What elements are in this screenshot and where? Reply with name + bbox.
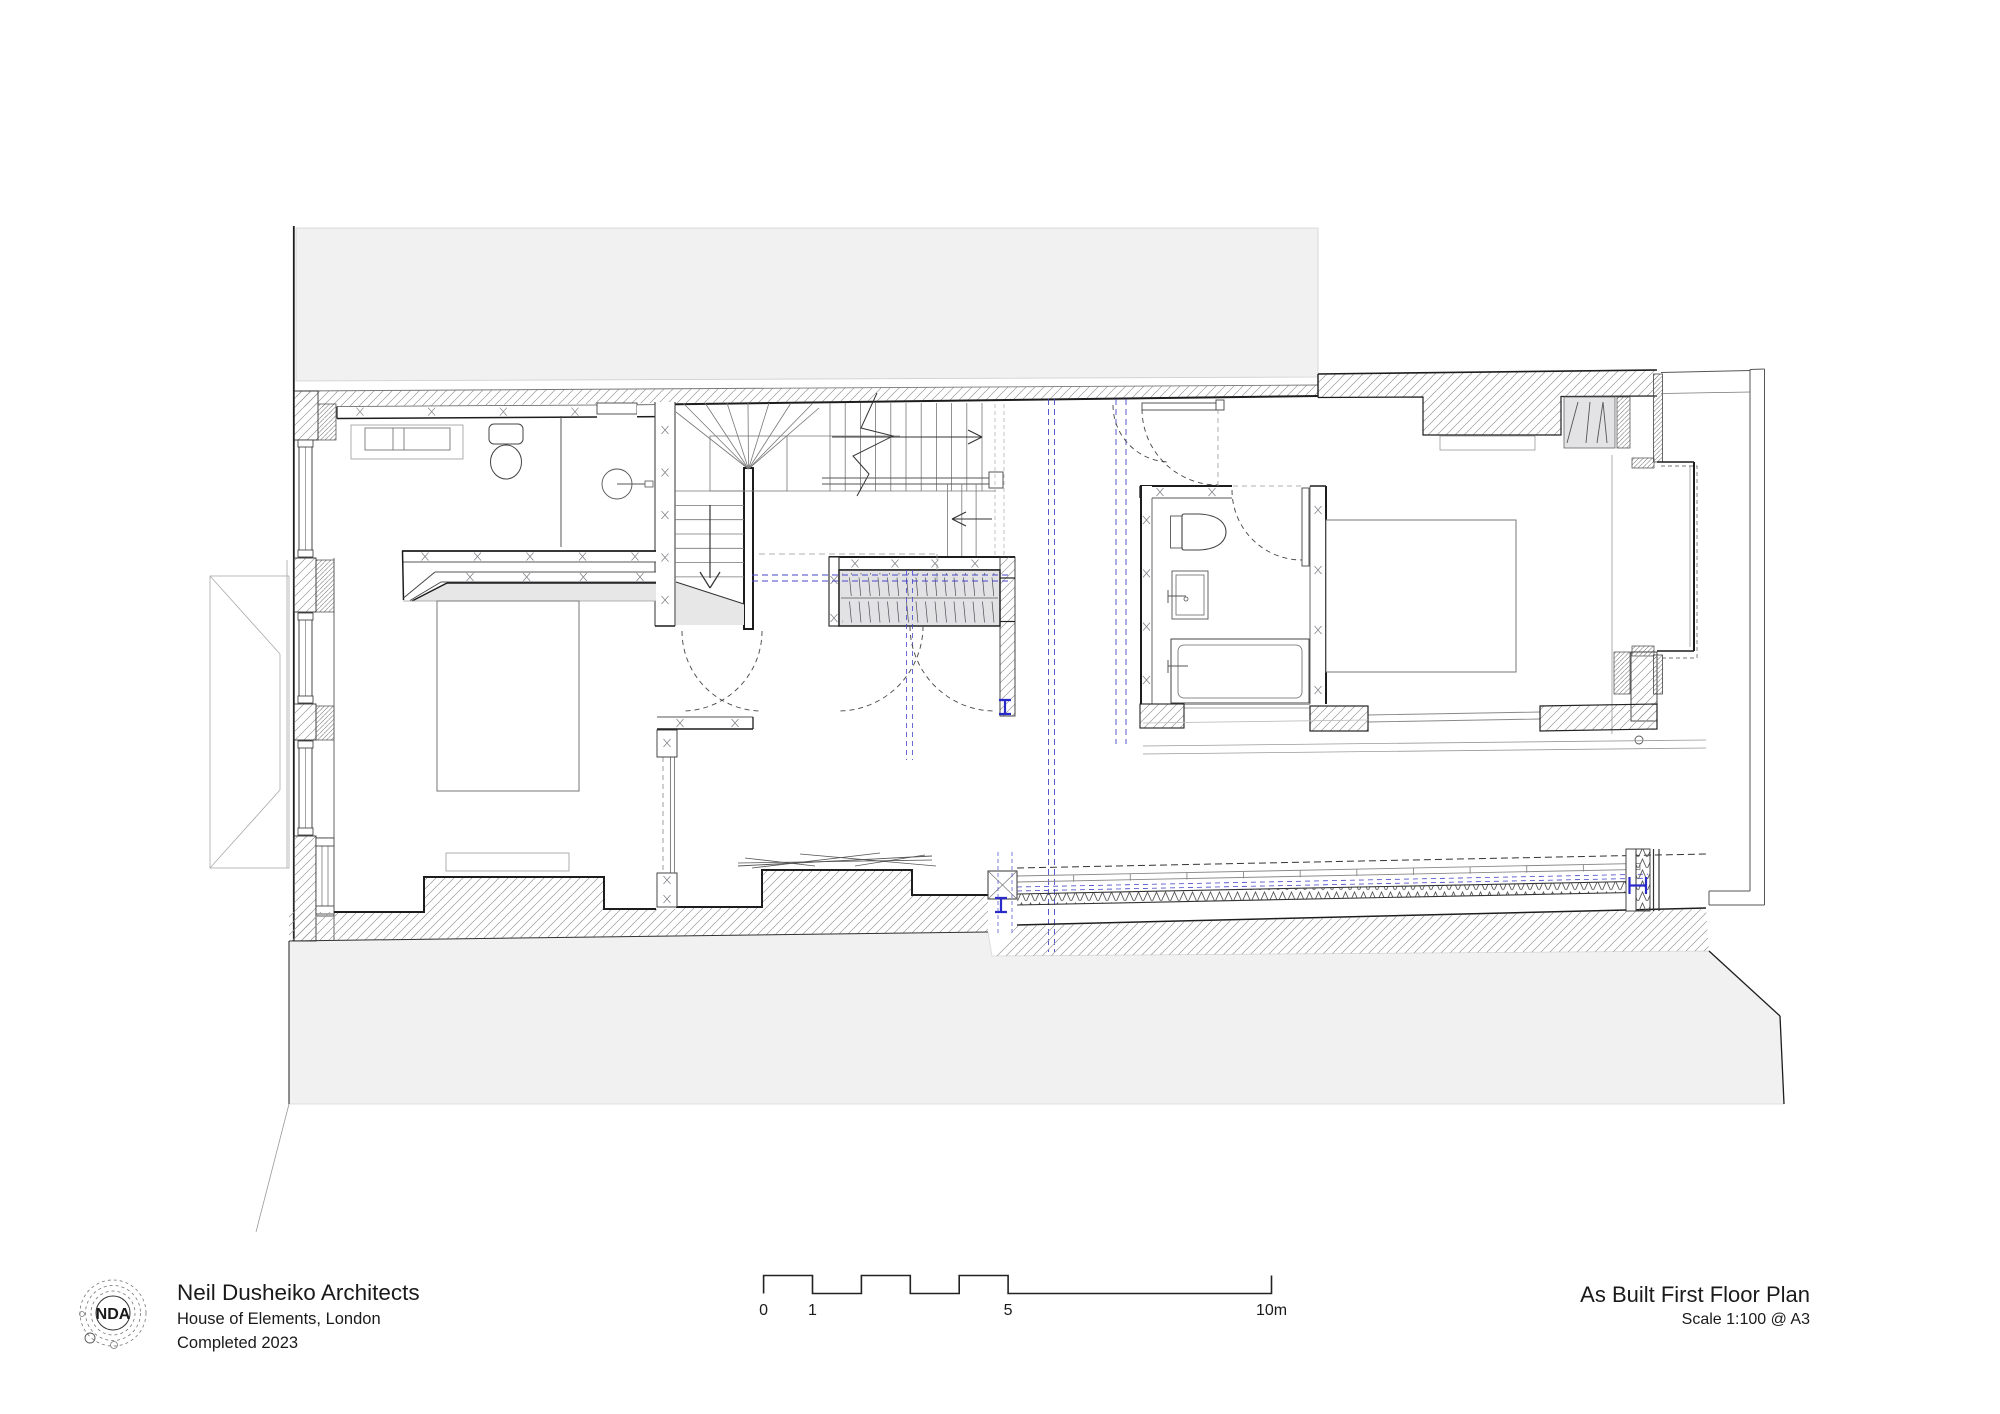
svg-text:Scale 1:100 @ A3: Scale 1:100 @ A3 xyxy=(1682,1311,1810,1328)
svg-text:10m: 10m xyxy=(1256,1302,1287,1319)
svg-text:5: 5 xyxy=(1004,1302,1013,1319)
svg-text:1: 1 xyxy=(808,1302,817,1319)
svg-text:Neil Dusheiko Architects: Neil Dusheiko Architects xyxy=(177,1280,420,1305)
svg-text:0: 0 xyxy=(759,1302,768,1319)
svg-text:NDA: NDA xyxy=(96,1306,131,1323)
svg-text:Completed 2023: Completed 2023 xyxy=(177,1334,298,1352)
svg-text:House of Elements, London: House of Elements, London xyxy=(177,1310,381,1328)
svg-text:As Built First Floor Plan: As Built First Floor Plan xyxy=(1580,1282,1810,1307)
